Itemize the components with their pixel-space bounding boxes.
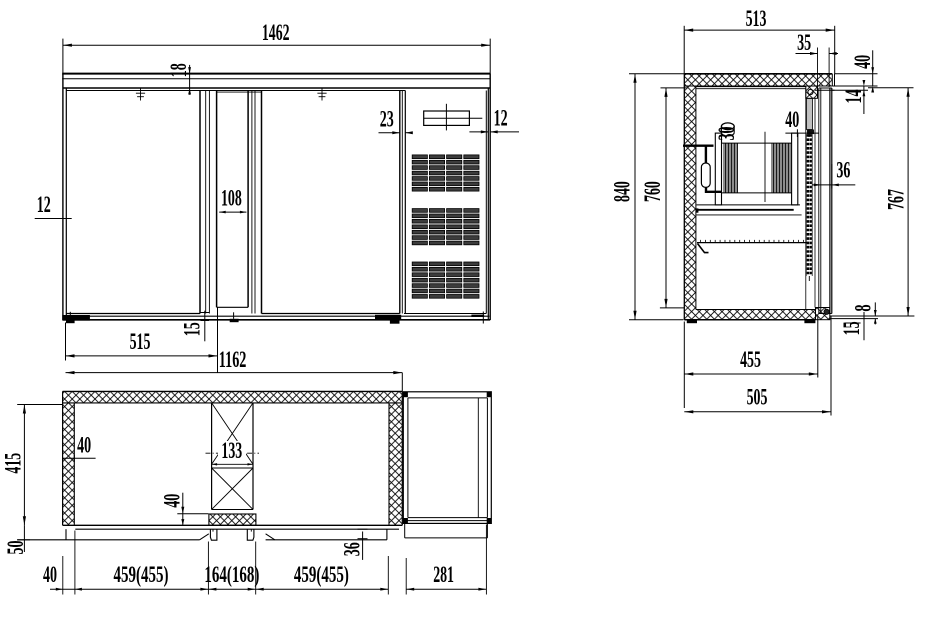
svg-text:505: 505 — [747, 385, 768, 410]
svg-text:40: 40 — [850, 55, 875, 69]
svg-text:12: 12 — [37, 192, 51, 217]
svg-text:30: 30 — [714, 127, 739, 141]
svg-text:8: 8 — [850, 304, 875, 311]
svg-text:15: 15 — [839, 321, 864, 335]
svg-text:415: 415 — [1, 453, 26, 474]
svg-text:35: 35 — [797, 30, 811, 55]
svg-text:40: 40 — [785, 107, 799, 132]
svg-text:23: 23 — [380, 106, 394, 131]
svg-text:164(168): 164(168) — [204, 562, 259, 587]
svg-text:760: 760 — [640, 181, 665, 202]
svg-text:455: 455 — [740, 347, 761, 372]
svg-text:15: 15 — [180, 322, 205, 336]
svg-text:459(455): 459(455) — [294, 562, 349, 587]
svg-text:459(455): 459(455) — [114, 562, 169, 587]
svg-text:133: 133 — [221, 438, 242, 463]
svg-text:40: 40 — [159, 494, 184, 508]
svg-text:50: 50 — [3, 541, 28, 555]
svg-text:108: 108 — [221, 186, 242, 211]
svg-text:12: 12 — [494, 105, 508, 130]
svg-text:14: 14 — [841, 89, 866, 103]
svg-text:40: 40 — [43, 562, 57, 587]
svg-text:515: 515 — [130, 329, 151, 354]
svg-text:1162: 1162 — [219, 347, 247, 372]
svg-text:36: 36 — [339, 542, 364, 556]
svg-text:840: 840 — [610, 181, 635, 202]
svg-text:513: 513 — [746, 6, 767, 31]
svg-text:40: 40 — [77, 433, 91, 458]
svg-text:18: 18 — [166, 63, 191, 77]
svg-text:1462: 1462 — [262, 20, 290, 45]
svg-text:281: 281 — [433, 562, 454, 587]
svg-text:767: 767 — [884, 189, 909, 210]
svg-text:36: 36 — [836, 158, 850, 183]
